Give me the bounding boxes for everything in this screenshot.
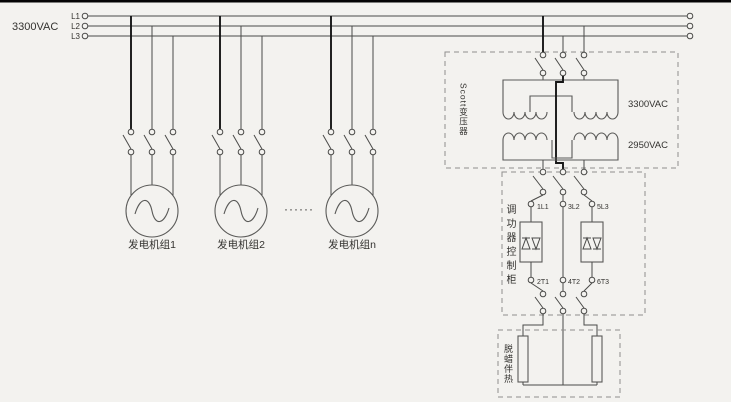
controller-input-jogs (531, 195, 592, 201)
primary-teaser-outline (530, 96, 572, 112)
bus-terminal-icon (82, 23, 88, 29)
terminal-label-3L2: 3L2 (568, 204, 580, 211)
secondary-voltage-label: 2950VAC (628, 140, 668, 151)
phase-label-l1: L1 (71, 12, 80, 21)
genN-drops (352, 26, 373, 129)
bus-terminal-icon (82, 13, 88, 19)
bus-terminal-icon (687, 33, 693, 39)
diagram-svg: L1 L2 L3 3300VAC 发电机组1 发电机组2 ······ (0, 0, 731, 402)
terminal-6T3-icon (589, 277, 595, 283)
terminal-label-5L3: 5L3 (597, 204, 609, 211)
gen1-disconnect-switch-icon (123, 129, 176, 155)
secondary-coil-left-icon (503, 133, 547, 140)
thyristor-pair-right-icon (583, 238, 601, 249)
primary-coil-left-icon (503, 112, 547, 119)
controller-input-switch-icon (533, 169, 587, 195)
thyristor-pair-left-icon (522, 238, 540, 249)
primary-coil-right-icon (574, 112, 618, 119)
terminal-label-2T1: 2T1 (537, 279, 549, 286)
scott-feeds (563, 26, 584, 52)
generator-unit-n: 发电机组n (323, 16, 378, 251)
bus-voltage-label: 3300VAC (12, 21, 58, 33)
gen2-label: 发电机组2 (217, 238, 265, 251)
secondary-winding-outline (503, 140, 618, 160)
load-label: 脱蜡伴热 (503, 344, 512, 384)
teaser-center-wire (556, 76, 563, 169)
genN-wave-icon (335, 200, 369, 221)
bus-terminal-icon (687, 23, 693, 29)
scott-transformer-label: Scott变压器 (459, 83, 468, 136)
terminal-label-1L1: 1L1 (537, 204, 549, 211)
generators-ellipsis: ······ (284, 202, 314, 216)
load-return-wire (523, 382, 597, 385)
controller-lower-wires (531, 262, 592, 277)
gen1-label: 发电机组1 (128, 238, 176, 251)
terminal-2T1-icon (528, 277, 534, 283)
terminal-5L3-icon (589, 201, 595, 207)
bus-terminal-icon (687, 13, 693, 19)
secondary-inner-outline (552, 140, 572, 158)
terminal-1L1-icon (528, 201, 534, 207)
gen2-disconnect-switch-icon (212, 129, 265, 155)
gen2-drops (241, 26, 262, 129)
genN-label: 发电机组n (328, 238, 376, 251)
bus-terminal-icon (82, 33, 88, 39)
heating-element-left (518, 336, 528, 382)
gen1-wave-icon (135, 200, 169, 221)
terminal-3L2-icon (560, 201, 566, 207)
generator-unit-1: 发电机组1 (123, 16, 178, 251)
generator-unit-2: 发电机组2 (212, 16, 267, 251)
one-line-diagram: L1 L2 L3 3300VAC 发电机组1 发电机组2 ······ (0, 0, 731, 402)
controller-output-switch-icon (535, 291, 587, 314)
primary-voltage-label: 3300VAC (628, 99, 668, 110)
controller-phase-wires (531, 207, 592, 277)
load-feed-wires (523, 314, 597, 385)
gen2-wave-icon (224, 200, 258, 221)
heating-element-right (592, 336, 602, 382)
scott-transformer-section: 3300VAC 2950VAC (445, 16, 678, 169)
power-controller-box (502, 172, 645, 315)
top-border-line (0, 0, 731, 3)
terminal-label-4T2: 4T2 (568, 279, 580, 286)
scott-disconnect-switch-icon (535, 52, 587, 76)
phase-label-l3: L3 (71, 32, 80, 41)
power-controller-label: 调功器控制柜 (504, 204, 514, 288)
gen1-drops (152, 26, 173, 129)
genN-disconnect-switch-icon (323, 129, 376, 155)
phase-label-l2: L2 (71, 22, 80, 31)
secondary-coil-right-icon (574, 133, 618, 140)
terminal-label-6T3: 6T3 (597, 279, 609, 286)
load-section (498, 314, 620, 397)
power-controller-section: 1L1 3L2 5L3 2T1 4T2 6T3 (502, 169, 645, 315)
terminal-4T2-icon (560, 277, 566, 283)
